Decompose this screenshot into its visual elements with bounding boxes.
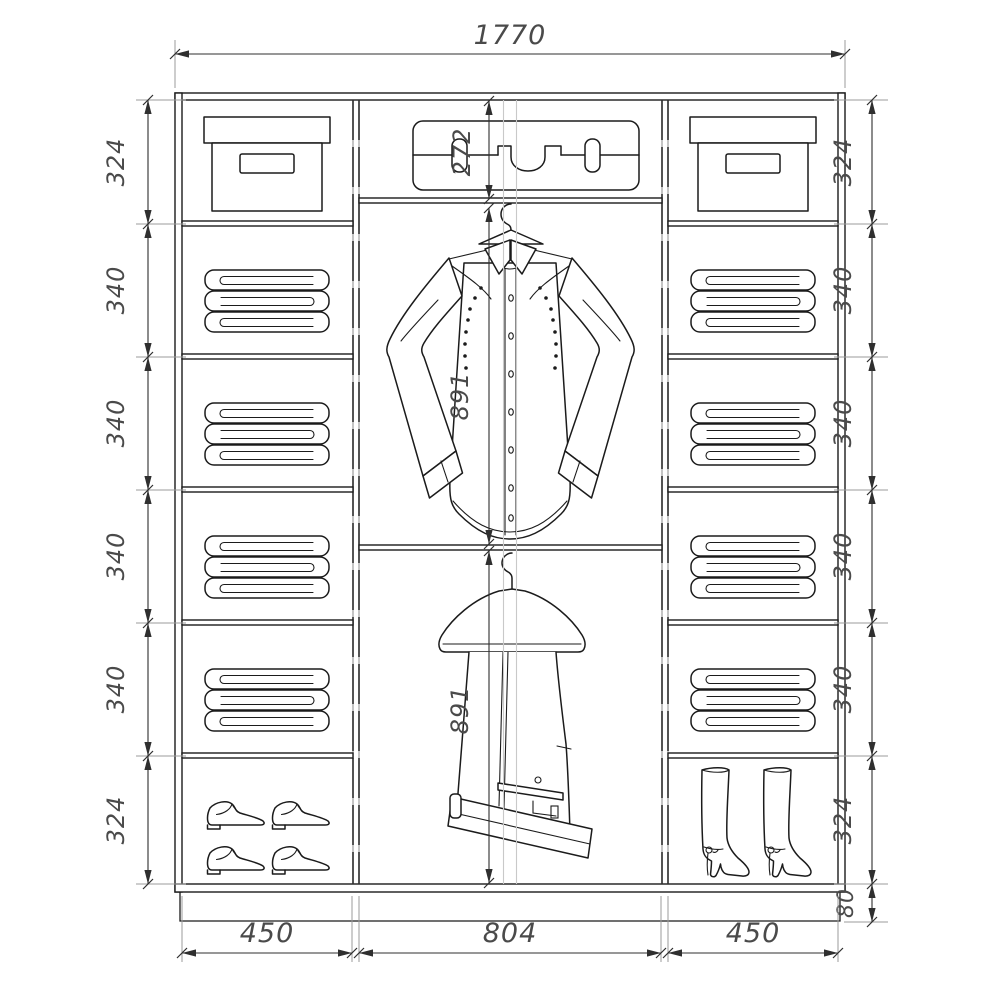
divider-left [353, 100, 359, 884]
dim-label-upper-hanging: 891 [446, 372, 474, 421]
womens-boots-icon [702, 768, 811, 877]
mens-shoes-icon [208, 802, 330, 874]
dim-chain-left: 324 340 340 340 340 324 [102, 95, 186, 889]
dim-label-left-1: 340 [102, 266, 130, 315]
dim-label-right-5: 324 [829, 796, 857, 845]
dim-label-bottom-left: 450 [240, 918, 295, 949]
wardrobe-dimension-drawing: 1770 324 340 340 340 340 324 [0, 0, 1000, 1000]
dim-label-right-2: 340 [829, 399, 857, 448]
wardrobe-contents [204, 117, 816, 877]
shirt-on-hanger-icon [387, 204, 634, 539]
dim-bottom-widths: 450 804 450 [177, 896, 843, 962]
suitcase-icon [413, 121, 639, 190]
dim-label-bottom-middle: 804 [483, 918, 538, 949]
dim-label-lower-hanging: 891 [446, 686, 474, 735]
dim-label-left-0: 324 [102, 138, 130, 187]
folded-linen-icon [205, 403, 329, 465]
plinth [180, 892, 840, 921]
dim-label-left-4: 340 [102, 665, 130, 714]
dim-label-left-3: 340 [102, 532, 130, 581]
folded-linen-icon [691, 270, 815, 332]
dim-label-right-1: 340 [829, 266, 857, 315]
dim-label-right-3: 340 [829, 532, 857, 581]
dim-label-top-shelf: 272 [448, 128, 476, 177]
folded-linen-icon [691, 403, 815, 465]
folded-linen-icon [205, 270, 329, 332]
folded-linen-icon [205, 669, 329, 731]
divider-right [662, 100, 668, 884]
storage-box-icon [690, 117, 816, 211]
folded-linen-icon [691, 669, 815, 731]
folded-linen-icon [205, 536, 329, 598]
dim-label-right-0: 324 [829, 138, 857, 187]
dim-label-right-4: 340 [829, 665, 857, 714]
storage-box-icon [204, 117, 330, 211]
dim-total-width: 1770 [170, 20, 850, 88]
folded-linen-icon [691, 536, 815, 598]
dim-label-left-2: 340 [102, 399, 130, 448]
dim-label-bottom-right: 450 [726, 918, 781, 949]
dim-label-left-5: 324 [102, 796, 130, 845]
dim-label-total-width: 1770 [474, 20, 547, 51]
